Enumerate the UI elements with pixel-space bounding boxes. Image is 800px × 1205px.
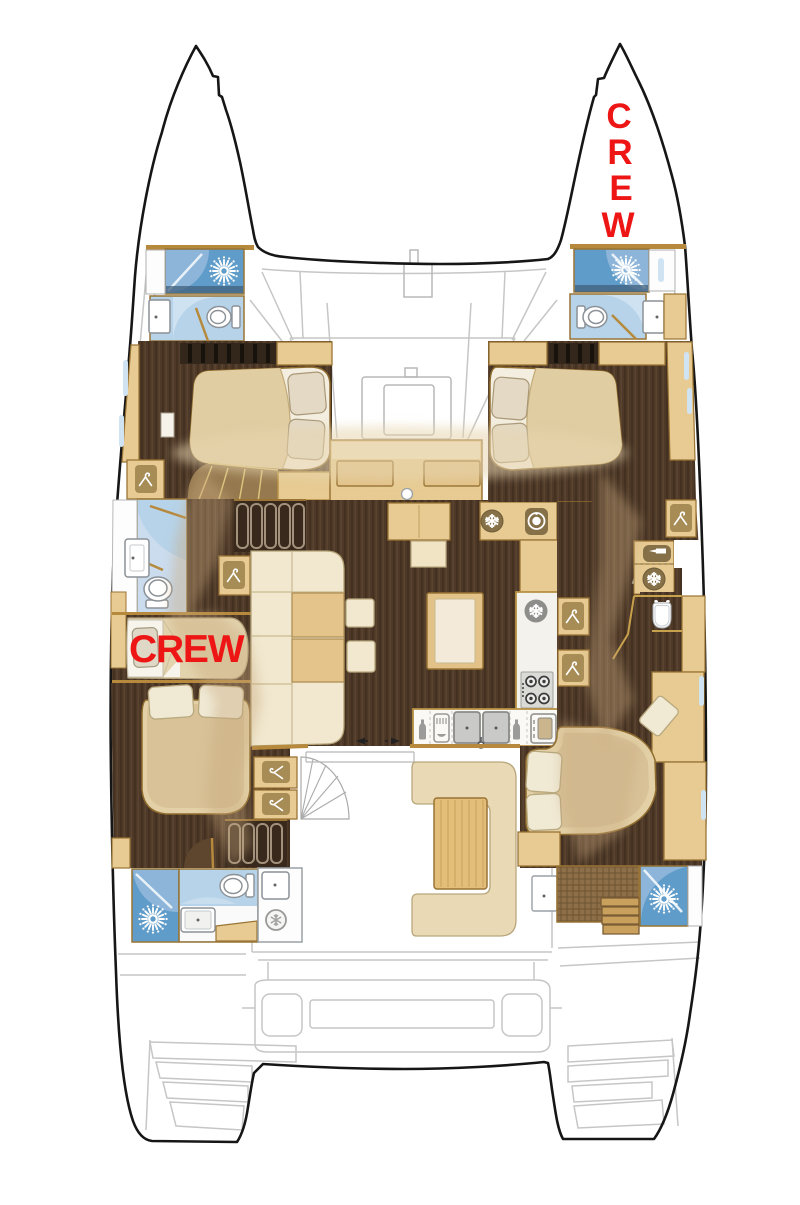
svg-text:R: R xyxy=(607,133,632,172)
svg-text:W: W xyxy=(601,206,634,245)
svg-text:CREW: CREW xyxy=(129,628,245,671)
svg-text:E: E xyxy=(609,169,632,208)
svg-text:C: C xyxy=(606,97,631,136)
